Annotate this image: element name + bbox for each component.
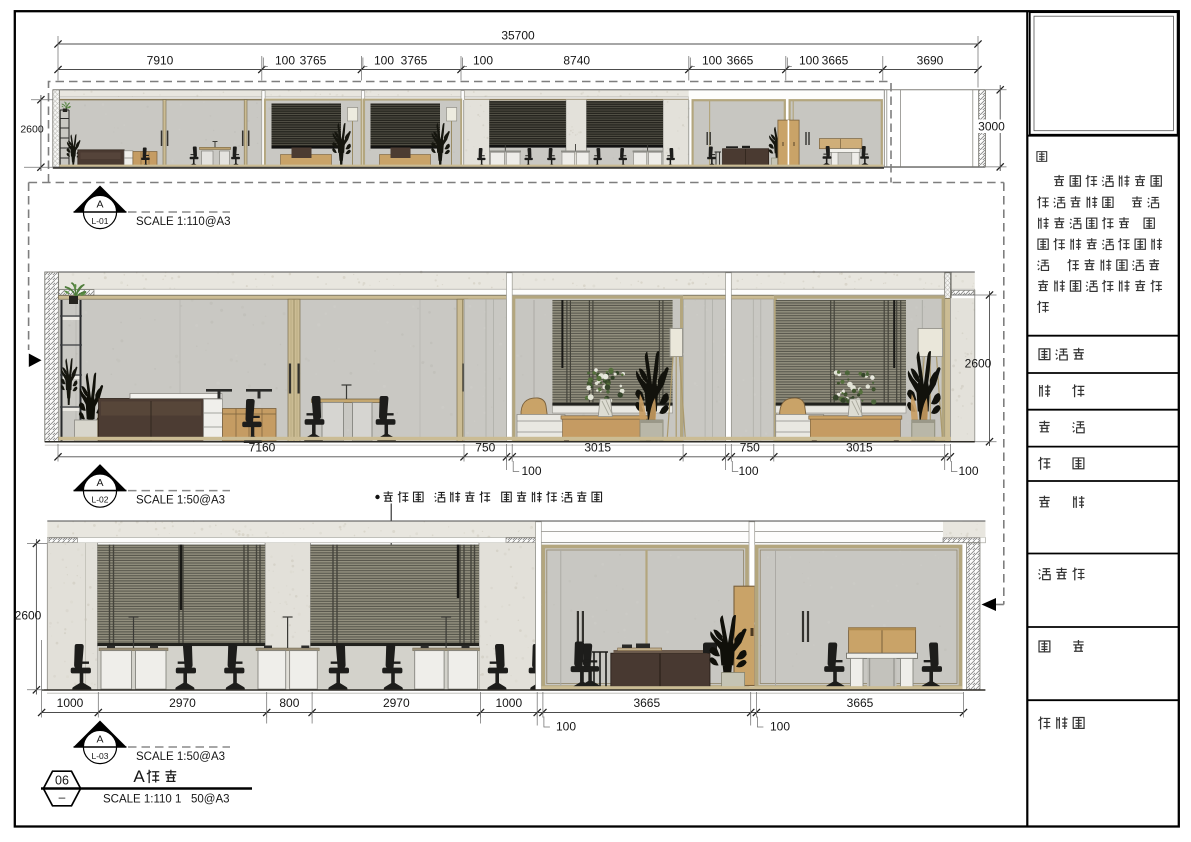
svg-text:100: 100 [473,54,493,68]
svg-text:100: 100 [374,54,394,68]
svg-text:8740: 8740 [563,54,590,68]
svg-text:100: 100 [275,54,295,68]
svg-text:A: A [96,477,103,489]
svg-text:100: 100 [958,464,978,478]
svg-text:–: – [59,790,66,804]
svg-text:2970: 2970 [169,696,196,710]
svg-text:1000: 1000 [495,696,522,710]
svg-text:100: 100 [521,464,541,478]
svg-text:2600: 2600 [965,357,992,371]
svg-text:3015: 3015 [846,441,873,455]
svg-text:SCALE 1:110@A3: SCALE 1:110@A3 [136,216,231,228]
svg-text:2600: 2600 [15,609,42,623]
svg-text:SCALE 1:50@A3: SCALE 1:50@A3 [136,751,225,763]
svg-text:A: A [133,767,145,786]
svg-text:7160: 7160 [249,441,276,455]
svg-text:100: 100 [738,464,758,478]
svg-text:L-03: L-03 [91,751,108,761]
svg-text:50@A3: 50@A3 [191,794,230,806]
svg-text:3000: 3000 [978,120,1005,134]
svg-text:2970: 2970 [383,696,410,710]
svg-text:3665: 3665 [822,54,849,68]
svg-text:L-01: L-01 [91,216,108,226]
svg-text:100: 100 [556,720,576,734]
svg-text:100: 100 [770,720,790,734]
svg-text:100: 100 [702,54,722,68]
svg-text:L-02: L-02 [91,495,108,505]
svg-text:750: 750 [475,441,495,455]
svg-text:3690: 3690 [917,54,944,68]
svg-text:3765: 3765 [300,54,327,68]
svg-text:A: A [96,734,103,746]
svg-text:3665: 3665 [847,696,874,710]
svg-text:800: 800 [279,696,299,710]
svg-text:A: A [96,199,103,211]
svg-text:100: 100 [799,54,819,68]
svg-text:1000: 1000 [57,696,84,710]
svg-text:2600: 2600 [20,124,44,136]
svg-text:SCALE 1:50@A3: SCALE 1:50@A3 [136,495,225,507]
svg-text:SCALE 1:110 1: SCALE 1:110 1 [103,794,181,806]
svg-text:06: 06 [55,774,69,788]
svg-text:750: 750 [740,441,760,455]
svg-text:7910: 7910 [147,54,174,68]
svg-text:3665: 3665 [633,696,660,710]
svg-text:3665: 3665 [727,54,754,68]
svg-text:35700: 35700 [501,29,535,43]
svg-text:3765: 3765 [401,54,428,68]
svg-text:3015: 3015 [584,441,611,455]
